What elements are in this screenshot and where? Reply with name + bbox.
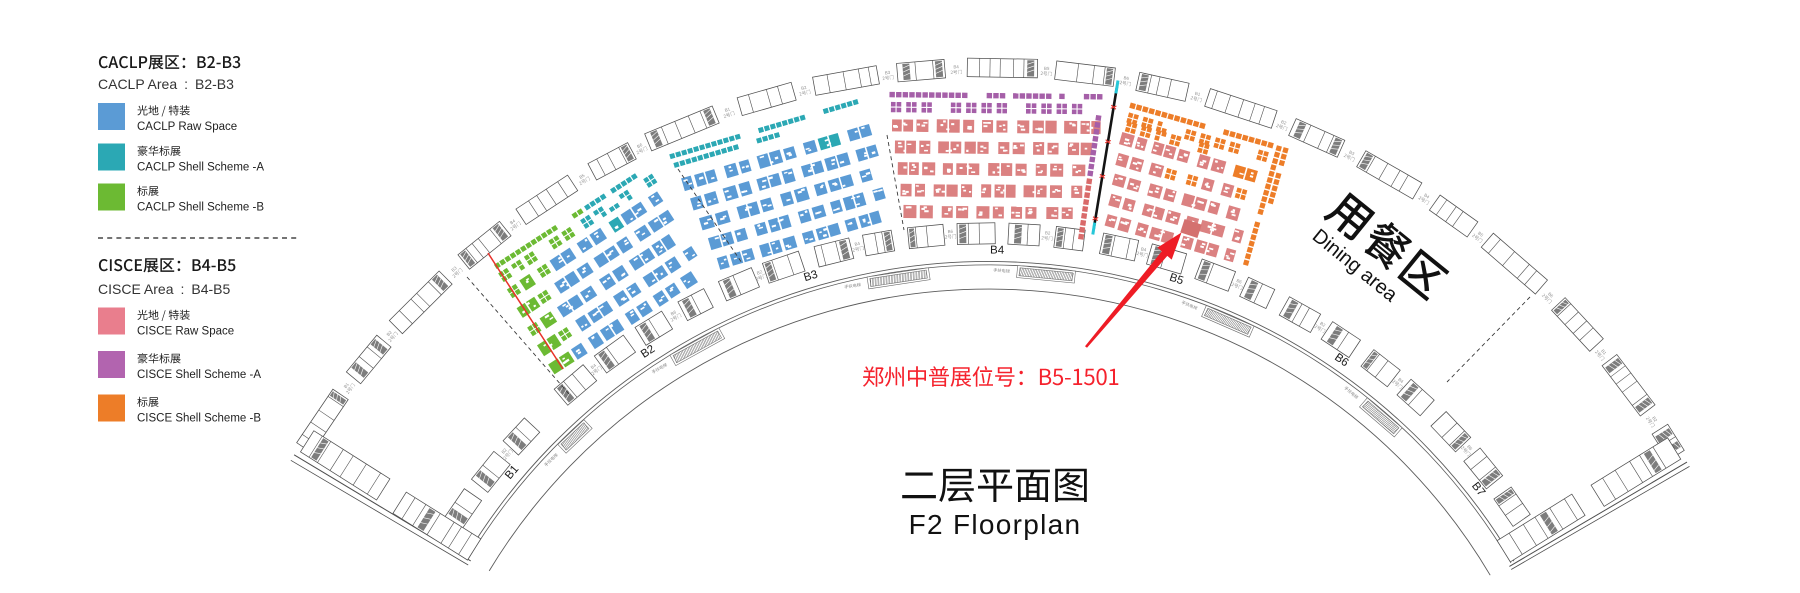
svg-text:B2: B2 <box>1280 119 1287 126</box>
svg-text:B6: B6 <box>636 142 644 149</box>
svg-text:B6: B6 <box>1123 75 1130 81</box>
svg-text:B4: B4 <box>1397 377 1405 385</box>
svg-text:B5: B5 <box>578 173 586 180</box>
svg-text:B2: B2 <box>500 447 508 455</box>
svg-text:B2: B2 <box>1045 230 1051 236</box>
svg-text:B4: B4 <box>1140 246 1147 252</box>
svg-text:B6: B6 <box>670 309 678 316</box>
svg-text:CACLP Area : B2-B3: CACLP Area : B2-B3 <box>98 76 234 92</box>
svg-text:B1: B1 <box>1600 348 1608 356</box>
svg-text:B4: B4 <box>1423 192 1431 199</box>
svg-text:CACLP Shell Scheme -A: CACLP Shell Scheme -A <box>137 162 264 174</box>
svg-text:B2: B2 <box>1319 321 1327 328</box>
svg-text:B5: B5 <box>1477 230 1485 238</box>
svg-text:B4: B4 <box>590 362 598 370</box>
svg-text:CACLP Shell Scheme -B: CACLP Shell Scheme -B <box>137 202 264 214</box>
svg-text:B4: B4 <box>990 245 1005 257</box>
svg-text:B1: B1 <box>724 106 731 113</box>
svg-text:B2: B2 <box>1651 415 1658 423</box>
svg-text:CISCE Raw Space: CISCE Raw Space <box>137 326 234 338</box>
svg-text:CISCE Shell Scheme -B: CISCE Shell Scheme -B <box>137 413 261 425</box>
svg-text:B1: B1 <box>1194 91 1201 97</box>
svg-text:CACLP Raw Space: CACLP Raw Space <box>137 121 237 133</box>
svg-text:B4: B4 <box>854 241 861 247</box>
svg-text:B3: B3 <box>884 70 891 76</box>
svg-text:F2 Floorplan: F2 Floorplan <box>909 509 1082 540</box>
svg-text:B2: B2 <box>639 343 657 361</box>
svg-text:B2: B2 <box>801 85 808 91</box>
svg-text:B5: B5 <box>1168 272 1185 288</box>
svg-text:B6: B6 <box>1466 444 1474 452</box>
svg-text:CISCE Area : B4-B5: CISCE Area : B4-B5 <box>98 281 230 297</box>
svg-text:B3: B3 <box>450 265 458 273</box>
svg-text:B1: B1 <box>343 381 351 389</box>
svg-text:B3: B3 <box>802 269 819 285</box>
svg-text:B5: B5 <box>1044 66 1050 71</box>
svg-text:B6: B6 <box>948 229 954 234</box>
svg-text:B2: B2 <box>756 269 763 276</box>
svg-text:CISCE Shell Scheme -A: CISCE Shell Scheme -A <box>137 369 261 381</box>
svg-text:B4: B4 <box>953 64 959 69</box>
svg-text:B4: B4 <box>509 218 517 226</box>
